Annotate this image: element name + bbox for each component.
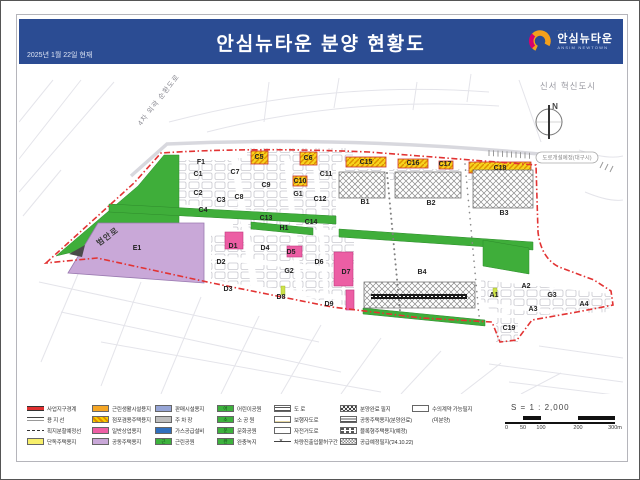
lot-label-C11: C11 (320, 171, 333, 178)
legend-label: 공급예정필지('24.10.22) (360, 438, 413, 446)
legend-label: 단독주택용지 (47, 438, 76, 446)
lot-label-E1: E1 (133, 245, 142, 252)
lot-label-D7: D7 (342, 269, 351, 276)
legend-swatch-pat-checker (340, 438, 357, 445)
legend-swatch-sw-none (412, 416, 429, 423)
legend-label: 완충녹지 (237, 438, 256, 446)
compass: N (535, 102, 563, 139)
legend-swatch-pat-crosshatch (412, 405, 429, 412)
lot-label-C8: C8 (235, 194, 244, 201)
legend-swatch-fill-green: 완 (217, 438, 234, 445)
lot-label-A2: A2 (522, 283, 531, 290)
lot-label-C3: C3 (217, 197, 226, 204)
lot-label-B3: B3 (500, 210, 509, 217)
legend-label: 블록형주택용지(예정) (360, 427, 407, 435)
lot-label-A4: A4 (580, 301, 589, 308)
lot-label-A3: A3 (529, 306, 538, 313)
legend-item: 공동주택용지 (92, 436, 151, 447)
title-bar: 2025년 1월 22일 현재 안심뉴타운 분양 현황도 · · · · · ·… (19, 19, 623, 64)
lot-label-C6: C6 (304, 155, 313, 162)
legend-label: 판매시설용지 (175, 405, 204, 413)
legend-item: 단독주택용지 (27, 436, 81, 447)
legend-column-5: 도 로보행자도로자전거도로✕차량진출입불허구간 (274, 403, 338, 447)
legend-item: 문문화공원 (217, 425, 261, 436)
lot-label-C14: C14 (305, 219, 318, 226)
lot-label-G3: G3 (547, 292, 556, 299)
lot-label-H1: H1 (280, 225, 289, 232)
legend-item: ✕차량진출입불허구간 (274, 436, 338, 447)
lot-label-G1: G1 (293, 191, 302, 198)
legend-item: 일반상업용지 (92, 425, 151, 436)
legend-swatch-fill-pink (92, 427, 109, 434)
legend-item: 분양완료 필지 (340, 403, 413, 414)
legend-label: 근린공원 (175, 438, 194, 446)
legend-item: 공급예정필지('24.10.22) (340, 436, 413, 447)
legend-swatch-icon-bike (274, 427, 291, 434)
map-sheet: 2025년 1월 22일 현재 안심뉴타운 분양 현황도 · · · · · ·… (16, 14, 628, 462)
legend-swatch-line-dashed (27, 430, 44, 432)
legend-label: 용 지 선 (47, 416, 64, 424)
lot-label-D3: D3 (224, 286, 233, 293)
legend-item: 보행자도로 (274, 414, 338, 425)
legend-column-3: 판매시설용지주 차 장가스공급설비근근린공원 (155, 403, 204, 447)
legend-item: 사업지구경계 (27, 403, 81, 414)
logo-circle-icon (527, 26, 553, 54)
lot-label-C2: C2 (194, 190, 203, 197)
legend-swatch-line-red (27, 406, 44, 411)
legend: S = 1 : 2,000 050100200300m 사업지구경계용 지 선획… (18, 401, 624, 459)
legend-swatch-pat-brick (340, 427, 357, 434)
lot-label-B2: B2 (427, 200, 436, 207)
legend-item: 공동주택용지(분양완료) (340, 414, 413, 425)
legend-label: 공동주택용지 (112, 438, 141, 446)
legend-column-4: 어어린이공원소소 공 원문문화공원완완충녹지 (217, 403, 261, 447)
legend-label: 점포겸용주택용지 (112, 416, 151, 424)
legend-swatch-hatch-orange (92, 416, 109, 423)
lot-label-C18: C18 (494, 165, 507, 172)
legend-label: 근린생활시설용지 (112, 405, 151, 413)
legend-label: 분양완료 필지 (360, 405, 391, 413)
legend-item: 판매시설용지 (155, 403, 204, 414)
lot-label-A1: A1 (490, 292, 499, 299)
district-label: 신서 혁신도시 (540, 81, 596, 91)
compass-n-label: N (552, 102, 558, 111)
lot-label-D2: D2 (217, 259, 226, 266)
legend-swatch-pat-checker-dark (340, 405, 357, 412)
lot-label-D1: D1 (229, 243, 238, 250)
legend-label: 도 로 (294, 405, 305, 413)
lot-label-G2: G2 (284, 268, 293, 275)
legend-swatch-icon-road (274, 405, 291, 412)
page: 2025년 1월 22일 현재 안심뉴타운 분양 현황도 · · · · · ·… (0, 0, 640, 480)
legend-item: 가스공급설비 (155, 425, 204, 436)
logo-name: 안심뉴타운 (557, 34, 613, 45)
legend-column-2: 근린생활시설용지점포겸용주택용지일반상업용지공동주택용지 (92, 403, 151, 447)
scale-tick: 0 (505, 425, 508, 431)
scale-text: S = 1 : 2,000 (511, 403, 623, 412)
scale-tick: 200 (573, 425, 582, 431)
scale-tick: 50 (520, 425, 526, 431)
legend-column-7: 수의계약 가능필지(미분양) (412, 403, 472, 425)
legend-swatch-fill-purple (92, 438, 109, 445)
legend-swatch-fill-green: 소 (217, 416, 234, 423)
legend-label: (미분양) (432, 416, 450, 424)
lot-label-C4: C4 (199, 207, 208, 214)
legend-label: 주 차 장 (175, 416, 192, 424)
legend-label: 획지분할예정선 (47, 427, 81, 435)
legend-item: 자전거도로 (274, 425, 338, 436)
legend-swatch-fill-gray (155, 416, 172, 423)
legend-swatch-icon-noaccess: ✕ (274, 438, 291, 445)
legend-swatch-fill-orange (92, 405, 109, 412)
legend-column-1: 사업지구경계용 지 선획지분할예정선단독주택용지 (27, 403, 81, 447)
logo-subtitle: ANSIM NEWTOWN (557, 46, 613, 50)
svg-text:도로개설예정(대구시): 도로개설예정(대구시) (542, 154, 591, 162)
legend-item: 어어린이공원 (217, 403, 261, 414)
legend-swatch-fill-green: 문 (217, 427, 234, 434)
lot-label-C16: C16 (407, 160, 420, 167)
legend-item: 점포겸용주택용지 (92, 414, 151, 425)
legend-label: 문화공원 (237, 427, 256, 435)
planned-road-label: 도로개설예정(대구시) (536, 152, 598, 163)
legend-label: 공동주택용지(분양완료) (360, 416, 412, 424)
scale-tick: 300m (608, 425, 622, 431)
lot-label-D8: D8 (277, 294, 286, 301)
lot-label-C17: C17 (439, 161, 452, 168)
lot-label-D6: D6 (315, 259, 324, 266)
legend-swatch-fill-yellow (27, 438, 44, 445)
legend-label: 사업지구경계 (47, 405, 76, 413)
legend-swatch-fill-green: 어 (217, 405, 234, 412)
legend-item: 획지분할예정선 (27, 425, 81, 436)
legend-column-6: 분양완료 필지공동주택용지(분양완료)블록형주택용지(예정)공급예정필지('24… (340, 403, 413, 447)
legend-swatch-fill-green: 근 (155, 438, 172, 445)
lot-label-C1: C1 (194, 171, 203, 178)
legend-swatch-pat-hlines (340, 416, 357, 423)
lot-label-C10: C10 (294, 178, 307, 185)
lot-label-C15: C15 (360, 159, 373, 166)
legend-label: 소 공 원 (237, 416, 254, 424)
legend-item: 근근린공원 (155, 436, 204, 447)
legend-item: 소소 공 원 (217, 414, 261, 425)
legend-item: (미분양) (412, 414, 472, 425)
lot-label-C12: C12 (314, 196, 327, 203)
lot-label-D9: D9 (325, 301, 334, 308)
lot-label-B4: B4 (418, 269, 427, 276)
legend-item: 근린생활시설용지 (92, 403, 151, 414)
lot-label-C9: C9 (262, 182, 271, 189)
lot-label-C5: C5 (255, 154, 264, 161)
scale-tick: 100 (536, 425, 545, 431)
legend-label: 차량진출입불허구간 (294, 438, 338, 446)
legend-label: 가스공급설비 (175, 427, 204, 435)
legend-label: 자전거도로 (294, 427, 318, 435)
lot-label-C13: C13 (260, 215, 273, 222)
legend-swatch-fill-blue (155, 427, 172, 434)
legend-item: 수의계약 가능필지 (412, 403, 472, 414)
legend-item: 주 차 장 (155, 414, 204, 425)
scale-ticks: 050100200300m (505, 425, 617, 433)
legend-swatch-icon-ped (274, 416, 291, 423)
legend-label: 어린이공원 (237, 405, 261, 413)
legend-label: 일반상업용지 (112, 427, 141, 435)
ring-road-label: 4차 외곽 순환도로 (135, 72, 181, 127)
legend-item: 도 로 (274, 403, 338, 414)
legend-item: 블록형주택용지(예정) (340, 425, 413, 436)
legend-item: 완완충녹지 (217, 436, 261, 447)
legend-swatch-line-double (27, 417, 44, 422)
lot-label-B1: B1 (361, 199, 370, 206)
ansim-newtown-logo: · · · · · · 안심뉴타운 ANSIM NEWTOWN (527, 26, 613, 54)
lot-label-D5: D5 (287, 249, 296, 256)
legend-item: 용 지 선 (27, 414, 81, 425)
lot-label-C19: C19 (503, 325, 516, 332)
scale-bar (505, 417, 615, 424)
lot-label-D4: D4 (261, 245, 270, 252)
scale-block: S = 1 : 2,000 050100200300m (505, 403, 623, 433)
legend-swatch-fill-blue-light (155, 405, 172, 412)
lot-label-C7: C7 (231, 169, 240, 176)
site-map: N 도로개설예정(대구시) 신서 혁신도시 4차 외곽 순환도로 범안로 F1C… (19, 64, 623, 394)
lot-label-F1: F1 (197, 159, 205, 166)
legend-label: 보행자도로 (294, 416, 318, 424)
legend-label: 수의계약 가능필지 (432, 405, 472, 413)
